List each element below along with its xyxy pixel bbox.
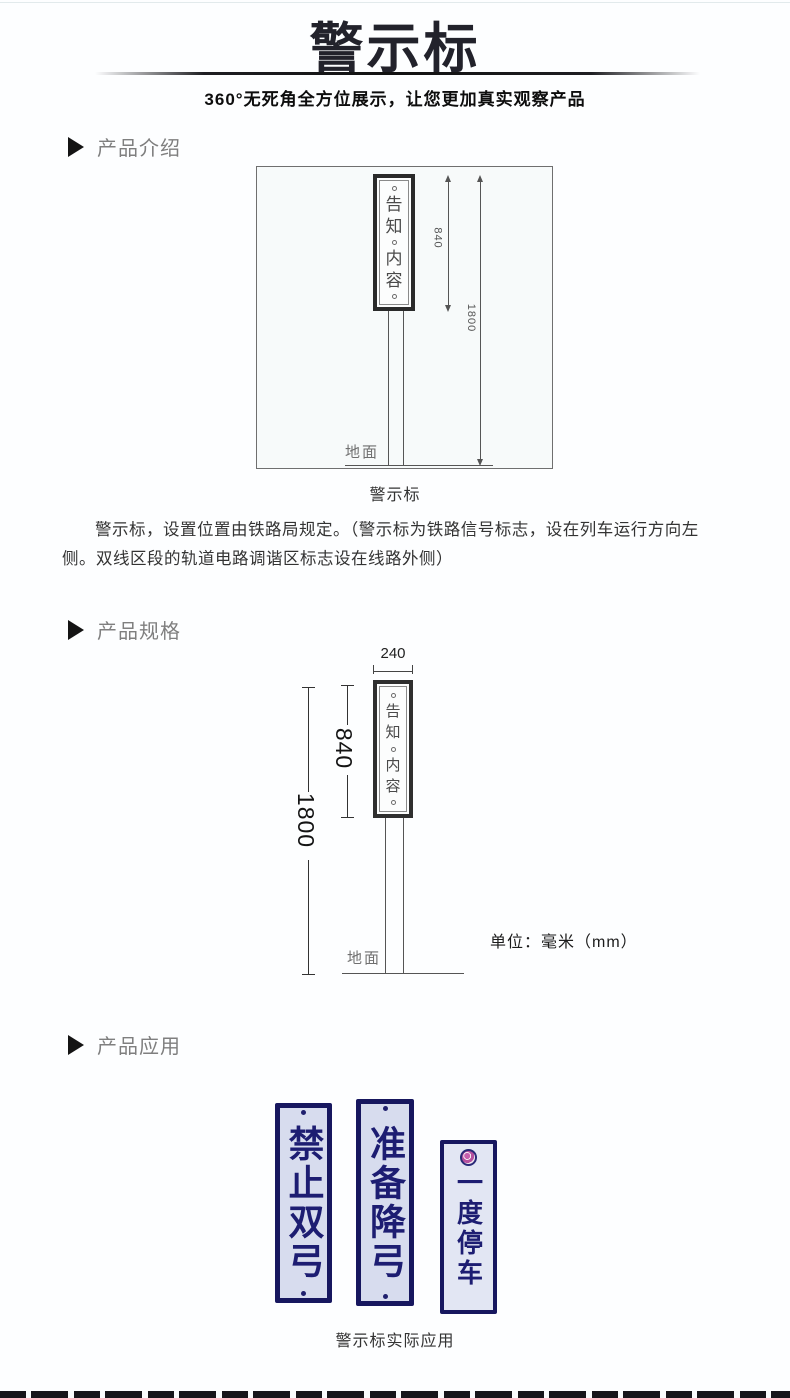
- triangle-bullet-icon: [68, 137, 84, 157]
- section-header-intro: 产品介绍: [68, 132, 181, 161]
- warning-sign-photo: 一度停车: [440, 1140, 497, 1314]
- dimension-label-840: 840: [323, 735, 364, 762]
- sign-text: 一度停车: [456, 1169, 482, 1289]
- bolt-icon: [383, 1106, 388, 1111]
- bolt-icon: [383, 1294, 388, 1299]
- intro-paragraph: 警示标，设置位置由铁路局规定。（警示标为铁路信号标志，设在列车运行方向左侧。双线…: [62, 516, 732, 574]
- ground-line: [345, 465, 493, 466]
- unit-label: 单位：毫米（mm）: [490, 928, 638, 952]
- sign-char: 知: [386, 218, 403, 235]
- diagram-sign-plate: 告 知 内 容: [373, 174, 415, 311]
- bolt-hole-icon: [392, 240, 397, 245]
- arrow-up-icon: [445, 175, 451, 182]
- dimension-label-840: 840: [427, 232, 448, 244]
- dimension-line-840: [347, 775, 348, 818]
- bolt-hole-icon: [391, 800, 396, 805]
- arrow-down-icon: [445, 305, 451, 312]
- dimension-line-1800: [308, 687, 309, 792]
- section-header-spec: 产品规格: [68, 615, 181, 644]
- application-caption: 警示标实际应用: [0, 1327, 790, 1351]
- triangle-bullet-icon: [68, 1035, 84, 1055]
- product-page: 警示标 360°无死角全方位展示，让您更加真实观察产品 产品介绍 告 知 内 容…: [0, 0, 790, 1398]
- diagram-sign-plate: 告 知 内 容: [373, 680, 413, 818]
- top-hairline: [0, 2, 790, 3]
- sign-char: 容: [386, 272, 403, 289]
- intro-diagram: 告 知 内 容 840 1800 地面: [256, 166, 553, 469]
- section-label: 产品介绍: [97, 132, 181, 161]
- arrow-up-icon: [477, 175, 483, 182]
- title-divider: [95, 72, 700, 75]
- sign-pole-line: [403, 311, 404, 466]
- sign-pole-line: [388, 311, 389, 466]
- bolt-icon: [301, 1110, 306, 1115]
- dimension-tick: [341, 817, 354, 818]
- dimension-label-1800: 1800: [457, 312, 485, 324]
- triangle-bullet-icon: [68, 620, 84, 640]
- intro-diagram-caption: 警示标: [0, 481, 790, 505]
- section-label: 产品应用: [97, 1030, 181, 1059]
- warning-sign-photo: 禁止双弓: [275, 1103, 332, 1303]
- dimension-label-1800: 1800: [278, 807, 333, 834]
- bolt-icon: [301, 1291, 306, 1296]
- bolt-hole-icon: [392, 294, 397, 299]
- dimension-tick: [412, 665, 413, 674]
- sign-text: 禁止双弓: [286, 1125, 322, 1281]
- sign-char: 内: [385, 758, 400, 773]
- ground-line: [342, 973, 464, 974]
- sign-pole-line: [403, 818, 404, 973]
- warning-sign-photo: 准备降弓: [356, 1099, 414, 1306]
- sign-char: 告: [385, 704, 400, 719]
- ground-label: 地面: [345, 441, 379, 462]
- bolt-hole-icon: [392, 186, 397, 191]
- dimension-tick: [302, 974, 315, 975]
- section-label: 产品规格: [97, 615, 181, 644]
- sign-pole-line: [385, 818, 386, 973]
- sign-char: 容: [385, 779, 400, 794]
- sign-char: 内: [386, 250, 403, 267]
- footer-decorative-bar: [0, 1391, 790, 1398]
- bolt-hole-icon: [391, 693, 396, 698]
- application-photos: 禁止双弓 准备降弓 一度停车: [255, 1090, 540, 1318]
- railway-emblem-icon: [460, 1149, 477, 1166]
- spec-diagram: 240 告 知 内 容 840 1800: [290, 645, 490, 980]
- sign-char: 知: [385, 725, 400, 740]
- section-header-app: 产品应用: [68, 1030, 181, 1059]
- bolt-hole-icon: [391, 747, 396, 752]
- ground-label: 地面: [347, 947, 381, 968]
- dimension-line-840: [347, 685, 348, 725]
- dimension-label-240: 240: [368, 645, 418, 662]
- dimension-line-240: [373, 671, 413, 672]
- diagram-sign-face: 告 知 内 容: [379, 180, 409, 305]
- dimension-line-1800: [308, 860, 309, 975]
- page-subtitle: 360°无死角全方位展示，让您更加真实观察产品: [0, 85, 790, 110]
- sign-text: 准备降弓: [367, 1125, 403, 1281]
- dimension-tick: [373, 665, 374, 674]
- diagram-sign-face: 告 知 内 容: [379, 686, 407, 812]
- sign-char: 告: [386, 196, 403, 213]
